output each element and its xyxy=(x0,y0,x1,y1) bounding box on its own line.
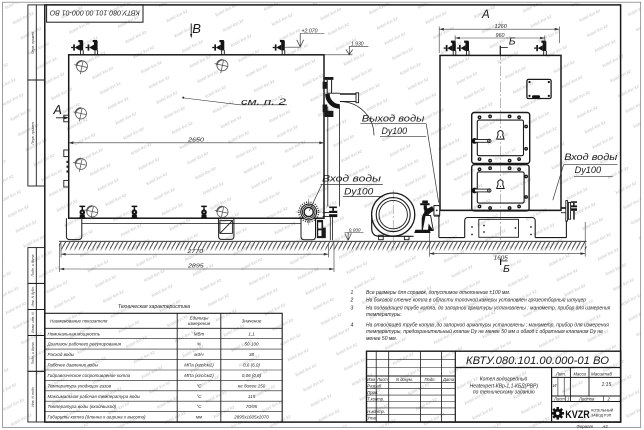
svg-text:Утв.: Утв. xyxy=(367,416,377,421)
svg-text:2770: 2770 xyxy=(186,249,204,255)
svg-text:Инв. N дубл.: Инв. N дубл. xyxy=(31,286,35,306)
svg-text:0.000: 0.000 xyxy=(349,228,361,233)
svg-text:И: И xyxy=(553,383,557,389)
svg-text:70/95: 70/95 xyxy=(246,404,258,409)
svg-text:Взам. инв. N: Взам. инв. N xyxy=(31,312,35,333)
svg-text:Лист: Лист xyxy=(376,377,388,382)
svg-text:А3: А3 xyxy=(602,424,609,429)
svg-text:1,1: 1,1 xyxy=(248,331,255,336)
svg-text:Перв. примен.: Перв. примен. xyxy=(31,31,35,54)
svg-text:1605: 1605 xyxy=(494,256,509,262)
svg-text:Т.контр.: Т.контр. xyxy=(367,396,384,401)
svg-text:КВТУ.080.101.00.000-01 ВО: КВТУ.080.101.00.000-01 ВО xyxy=(49,9,140,16)
svg-text:Б: Б xyxy=(503,263,510,275)
svg-text:Вход воды: Вход воды xyxy=(564,152,617,163)
svg-text:Температура уходящих газов: Температура уходящих газов xyxy=(48,383,112,388)
svg-text:по техническому заданию: по техническому заданию xyxy=(473,390,535,396)
svg-text:Все размеры для справок, допус: Все размеры для справок, допустимое откл… xyxy=(366,290,510,296)
svg-text:N докум.: N докум. xyxy=(396,377,413,382)
svg-text:Листов: Листов xyxy=(578,396,595,401)
svg-text:50-100: 50-100 xyxy=(244,342,259,347)
svg-text:Температура воды (вход/выход): Температура воды (вход/выход) xyxy=(48,404,117,409)
svg-text:Dy100: Dy100 xyxy=(344,187,374,198)
svg-text:1.930: 1.930 xyxy=(351,41,364,47)
svg-text:На боковой стенке котла в обла: На боковой стенке котла в области топочн… xyxy=(366,297,586,304)
svg-text:2895х1605х2070: 2895х1605х2070 xyxy=(233,415,269,420)
svg-text:+2.070: +2.070 xyxy=(302,29,318,35)
svg-text:Котел водогрейный: Котел водогрейный xyxy=(480,376,528,383)
svg-text:м3/ч: м3/ч xyxy=(194,352,204,357)
svg-text:На подводящей трубе котла, д: На подводящей трубе котла, до запорной а… xyxy=(366,305,611,312)
svg-text:Инв. N подл.: Инв. N подл. xyxy=(31,386,35,406)
svg-text:4: 4 xyxy=(351,323,354,329)
svg-text:Масса: Масса xyxy=(574,371,587,376)
svg-text:МПа (кгс/см2): МПа (кгс/см2) xyxy=(184,373,214,378)
svg-text:Наименование показателя: Наименование показателя xyxy=(50,319,108,324)
svg-text:А: А xyxy=(53,103,62,117)
svg-text:1260: 1260 xyxy=(495,24,508,30)
svg-text:Лист: Лист xyxy=(553,396,565,401)
svg-text:Техническая характеристика: Техническая характеристика xyxy=(118,304,190,310)
svg-text:Подп. и дата: Подп. и дата xyxy=(31,342,35,364)
svg-text:%: % xyxy=(197,342,201,347)
svg-text:115: 115 xyxy=(248,394,256,399)
svg-text:Б: Б xyxy=(509,35,516,47)
svg-text:А: А xyxy=(481,9,490,21)
svg-text:38: 38 xyxy=(249,352,255,357)
svg-text:В: В xyxy=(192,21,201,36)
svg-text:Номинальная мощность: Номинальная мощность xyxy=(48,331,101,336)
svg-text:мм: мм xyxy=(196,415,202,420)
svg-text:Максимальная рабочая температу: Максимальная рабочая температура воды xyxy=(48,394,141,399)
svg-text:3: 3 xyxy=(351,306,354,312)
svg-text:Гидравлическое сопротивление к: Гидравлическое сопротивление котла xyxy=(48,373,131,378)
svg-text:Лит.: Лит. xyxy=(555,371,566,376)
svg-text:Дата: Дата xyxy=(442,377,455,382)
svg-text:менее 50 мм.: менее 50 мм. xyxy=(366,336,397,342)
svg-text:°С: °С xyxy=(196,383,202,388)
svg-text:°С: °С xyxy=(196,394,202,399)
svg-text:температуры, предохранительный: температуры, предохранительный клапан Dу… xyxy=(366,328,603,335)
svg-text:1:15: 1:15 xyxy=(602,382,612,388)
svg-text:2895: 2895 xyxy=(187,264,205,270)
svg-text:Перв. примен.: Перв. примен. xyxy=(31,121,35,144)
svg-text:Масштаб: Масштаб xyxy=(591,371,612,376)
svg-text:°С: °С xyxy=(196,404,202,409)
svg-text:960: 960 xyxy=(496,33,506,39)
svg-text:Dy100: Dy100 xyxy=(575,165,602,176)
svg-text:На отводящей трубе котла ,до з: На отводящей трубе котла ,до запорной ар… xyxy=(366,322,609,329)
svg-text:Heatexpert-КВр-1,1-КБД(РВР): Heatexpert-КВр-1,1-КБД(РВР) xyxy=(470,383,539,389)
svg-text:Dy100: Dy100 xyxy=(382,126,408,137)
svg-text:Диапазон рабочего регулировани: Диапазон рабочего регулирования xyxy=(47,342,122,347)
svg-text:2650: 2650 xyxy=(187,137,205,143)
svg-text:Изм: Изм xyxy=(367,377,375,382)
svg-text:Н.контр.: Н.контр. xyxy=(367,409,385,414)
svg-text:Вход воды: Вход воды xyxy=(322,174,381,185)
svg-text:1: 1 xyxy=(351,290,354,296)
svg-text:Расход воды: Расход воды xyxy=(48,352,75,357)
svg-text:2: 2 xyxy=(350,298,354,304)
svg-text:ЗАВОД РЭП: ЗАВОД РЭП xyxy=(591,414,612,418)
svg-text:КОТЕЛЬНЫЙ: КОТЕЛЬНЫЙ xyxy=(591,408,613,412)
svg-text:Подп.: Подп. xyxy=(425,377,436,382)
svg-text:Выход воды: Выход воды xyxy=(362,114,425,125)
svg-text:Формат: Формат xyxy=(577,424,594,429)
svg-text:0,06 (0,6): 0,06 (0,6) xyxy=(242,373,262,378)
svg-text:Единицы: Единицы xyxy=(190,316,210,321)
svg-text:МВт: МВт xyxy=(194,331,205,336)
svg-text:Пров.: Пров. xyxy=(367,390,378,395)
svg-text:не более 250: не более 250 xyxy=(238,383,266,388)
svg-text:Разраб.: Разраб. xyxy=(367,384,382,389)
svg-text:Рабочее давление воды: Рабочее давление воды xyxy=(48,363,99,368)
svg-text:KVZR: KVZR xyxy=(565,409,590,421)
svg-text:температуры.: температуры. xyxy=(366,312,402,318)
svg-text:1: 1 xyxy=(567,396,569,401)
svg-text:МПа (кгс/см2): МПа (кгс/см2) xyxy=(184,363,214,368)
svg-text:см. п. 2: см. п. 2 xyxy=(241,96,286,106)
svg-text:Подп. и дата: Подп. и дата xyxy=(31,254,35,276)
svg-text:Значение: Значение xyxy=(242,319,262,324)
svg-text:измерения: измерения xyxy=(188,321,211,326)
svg-text:Габариты котла (длинна х ширин: Габариты котла (длинна х ширина х высота… xyxy=(48,415,147,420)
svg-text:КВТУ.080.101.00.000-01 ВО: КВТУ.080.101.00.000-01 ВО xyxy=(466,355,609,367)
svg-text:0,6 (6,0): 0,6 (6,0) xyxy=(243,363,260,368)
